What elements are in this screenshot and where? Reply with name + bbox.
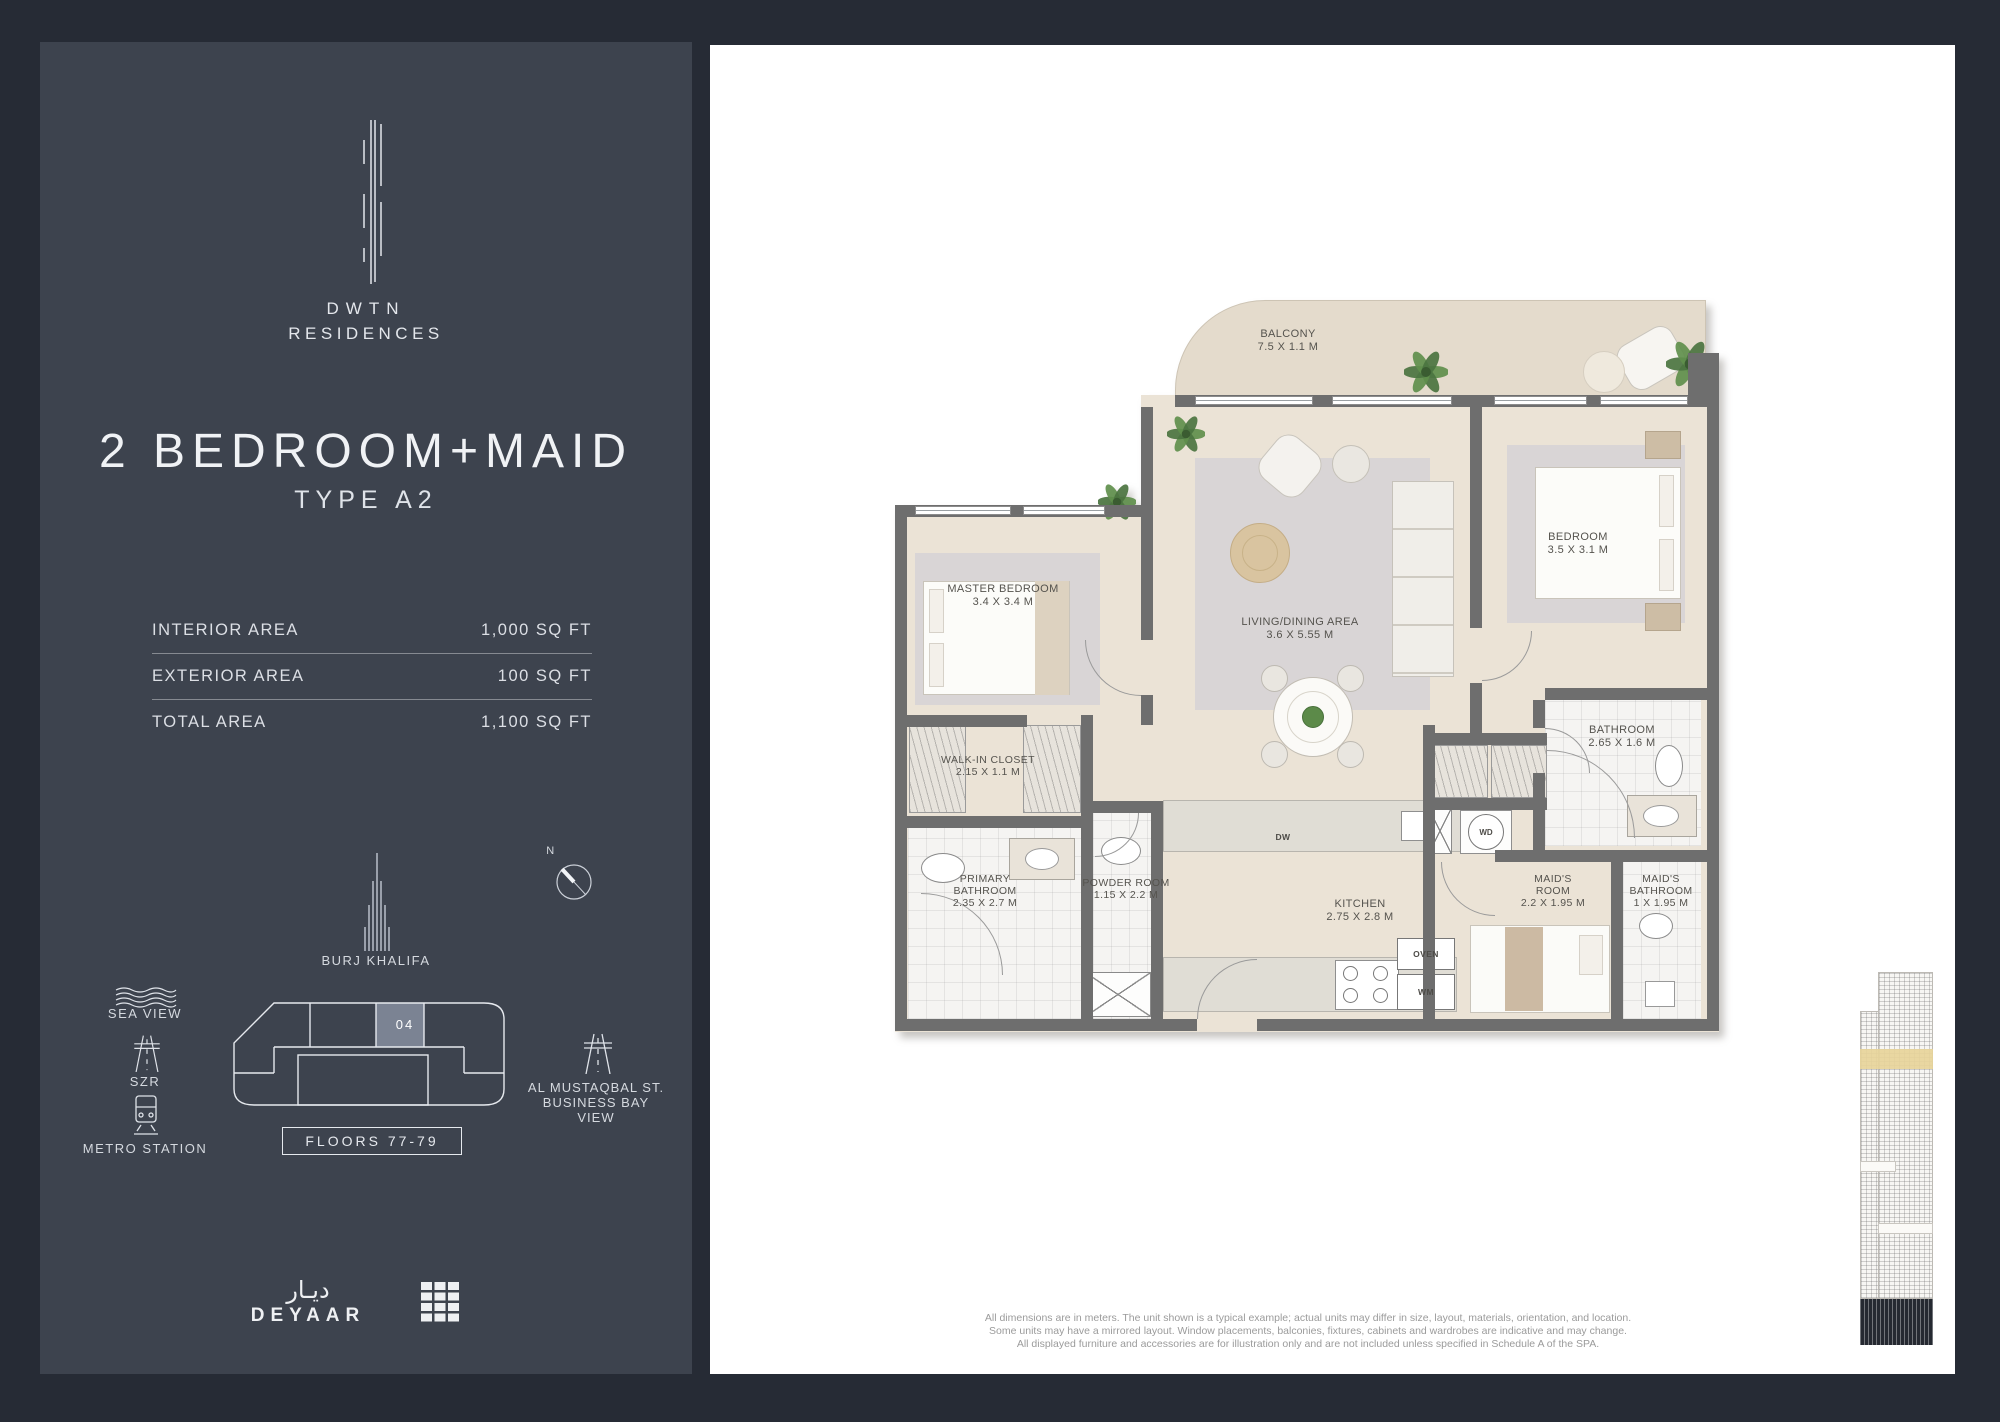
wall-wic-pbath: [907, 816, 1081, 828]
room-label-master-bedroom: MASTER BEDROOM 3.4 X 3.4 M: [905, 583, 1101, 609]
room-dims: 2.2 X 1.95 M: [1520, 897, 1586, 909]
room-dims: 3.6 X 5.55 M: [1200, 629, 1400, 642]
metro-station-icon: [129, 1094, 163, 1136]
wall-wic-top: [907, 715, 1027, 727]
plant-icon: [1404, 350, 1448, 394]
deyaar-latin-wordmark: DEYAAR: [208, 1305, 408, 1327]
brochure-page: DWTN RESIDENCES 2 BEDROOM+MAID TYPE A2 I…: [0, 0, 2000, 1422]
room-label-living-dining: LIVING/DINING AREA 3.6 X 5.55 M: [1200, 616, 1400, 642]
street-view-label: AL MUSTAQBAL ST. BUSINESS BAY VIEW: [520, 1080, 672, 1125]
plant-2: [1167, 415, 1205, 453]
street-line: AL MUSTAQBAL ST.: [520, 1080, 672, 1095]
szr-road-icon: [127, 1032, 167, 1072]
wall-bath-top: [1545, 688, 1707, 700]
metro-station-label: METRO STATION: [63, 1141, 227, 1156]
disclaimer-line: All displayed furniture and accessories …: [958, 1338, 1658, 1352]
washing-machine-label: WM: [1397, 974, 1455, 1010]
wall-living-bed2-1: [1470, 407, 1482, 628]
room-dims: 1.15 X 2.2 M: [1066, 889, 1186, 901]
room-label-walk-in-closet: WALK-IN CLOSET 2.15 X 1.1 M: [890, 754, 1086, 778]
window-3: [1600, 396, 1688, 405]
elevation-tower-right: [1878, 972, 1933, 1299]
room-name: WALK-IN CLOSET: [890, 754, 1086, 766]
floor-highlight-band: [1860, 1049, 1933, 1069]
area-value: 1,000 SQ FT: [481, 621, 592, 640]
sofa: [1392, 481, 1454, 677]
elevation-mech-band: [1860, 1161, 1896, 1172]
elevation-podium: [1860, 1299, 1933, 1345]
brand-name-line2: RESIDENCES: [40, 324, 692, 344]
szr-label: SZR: [85, 1074, 205, 1089]
bedroom-nightstand: [1645, 603, 1681, 631]
room-name: LIVING/DINING AREA: [1200, 616, 1400, 629]
wall-powder-left: [1081, 813, 1093, 1031]
dining-plant: [1302, 706, 1324, 728]
room-name: MAID'S ROOM: [1520, 873, 1586, 897]
oven-label: OVEN: [1397, 938, 1455, 970]
window-2: [1494, 396, 1587, 405]
floor-plan: [895, 295, 1720, 1040]
coffee-table-ring: [1242, 535, 1278, 571]
balcony-pouf: [1583, 351, 1625, 393]
room-dims: 2.65 X 1.6 M: [1524, 737, 1720, 750]
room-dims: 2.35 X 2.7 M: [937, 897, 1033, 909]
room-name: BATHROOM: [1524, 724, 1720, 737]
room-label-maids-room: MAID'S ROOM 2.2 X 1.95 M: [1520, 873, 1586, 909]
room-label-kitchen: KITCHEN 2.75 X 2.8 M: [1262, 898, 1458, 924]
room-dims: 3.5 X 3.1 M: [1480, 544, 1676, 557]
wall-master-living-1: [1141, 407, 1153, 640]
wall-bath-left-2: [1533, 773, 1545, 850]
stove-burner: [1343, 988, 1358, 1003]
disclaimer-line: Some units may have a mirrored layout. W…: [958, 1325, 1658, 1339]
bedroom-pillow: [1659, 475, 1674, 527]
plant-icon: [1167, 415, 1205, 453]
table-row: TOTAL AREA 1,100 SQ FT: [152, 700, 592, 745]
room-label-primary-bathroom: PRIMARY BATHROOM 2.35 X 2.7 M: [937, 873, 1033, 909]
primary-bath-basin: [1025, 848, 1059, 870]
burj-khalifa-icon: [354, 853, 400, 951]
window-4: [915, 506, 1011, 515]
room-label-balcony: BALCONY 7.5 X 1.1 M: [1188, 328, 1388, 354]
elevation-mech-band: [1878, 1223, 1933, 1234]
maids-bath-sink: [1645, 981, 1675, 1007]
room-label-powder-room: POWDER ROOM 1.15 X 2.2 M: [1066, 877, 1186, 901]
room-dims: 2.15 X 1.1 M: [890, 766, 1086, 778]
window-0: [1195, 396, 1313, 405]
deyaar-logo-mark-icon: [421, 1282, 459, 1322]
area-value: 100 SQ FT: [498, 667, 592, 686]
building-elevation: [1860, 965, 1935, 1347]
sea-view-icon: [114, 986, 178, 1008]
floorplate-diagram: [228, 995, 510, 1113]
room-name: KITCHEN: [1262, 898, 1458, 911]
brand-building-icon: [350, 116, 394, 288]
window-1: [1332, 396, 1452, 405]
room-name: POWDER ROOM: [1066, 877, 1186, 889]
toilet: [1639, 913, 1673, 939]
plant-0: [1404, 350, 1448, 394]
sea-view-label: SEA VIEW: [85, 1006, 205, 1021]
page-title: 2 BEDROOM+MAID: [40, 424, 692, 479]
wall-master-living-2: [1141, 695, 1153, 725]
floors-badge: FLOORS 77-79: [282, 1127, 462, 1155]
wall-maid-top: [1495, 850, 1707, 862]
brand-name-line1: DWTN: [40, 299, 692, 319]
shaft-box: [1085, 972, 1151, 1017]
room-dims: 1 X 1.95 M: [1617, 897, 1705, 909]
page-subtitle: TYPE A2: [40, 486, 692, 515]
unit-number: 04: [381, 1017, 429, 1032]
room-name: BEDROOM: [1480, 531, 1676, 544]
side-table: [1332, 445, 1370, 483]
hall-wardrobe: [1431, 745, 1488, 798]
stove-burner: [1373, 966, 1388, 981]
wall-wardrobe-bottom: [1431, 798, 1547, 810]
street-road-icon: [577, 1030, 619, 1074]
toilet: [1655, 745, 1683, 787]
room-label-bedroom: BEDROOM 3.5 X 3.1 M: [1480, 531, 1676, 557]
room-name: MAID'S BATHROOM: [1617, 873, 1705, 897]
washer-dryer-label: WD: [1468, 814, 1504, 850]
room-name: MASTER BEDROOM: [905, 583, 1101, 596]
wall-powder-right: [1151, 801, 1163, 1031]
disclaimer-line: All dimensions are in meters. The unit s…: [958, 1312, 1658, 1326]
master-pillow: [929, 643, 944, 687]
wall-right: [1707, 395, 1719, 1031]
bath-basin: [1643, 805, 1679, 827]
maids-pillow: [1579, 935, 1603, 975]
room-label-maids-bathroom: MAID'S BATHROOM 1 X 1.95 M: [1617, 873, 1705, 909]
compass-icon: [546, 854, 600, 908]
area-label: EXTERIOR AREA: [152, 667, 304, 686]
room-label-bathroom: BATHROOM 2.65 X 1.6 M: [1524, 724, 1720, 750]
window-5: [1023, 506, 1105, 515]
area-label: INTERIOR AREA: [152, 621, 299, 640]
table-row: EXTERIOR AREA 100 SQ FT: [152, 654, 592, 699]
street-line: BUSINESS BAY: [520, 1095, 672, 1110]
table-row: INTERIOR AREA 1,000 SQ FT: [152, 608, 592, 653]
area-table: INTERIOR AREA 1,000 SQ FT EXTERIOR AREA …: [152, 608, 592, 745]
burj-khalifa-label: BURJ KHALIFA: [276, 953, 476, 968]
room-name: PRIMARY BATHROOM: [937, 873, 1033, 897]
area-value: 1,100 SQ FT: [481, 713, 592, 732]
stove-burner: [1343, 966, 1358, 981]
room-dims: 7.5 X 1.1 M: [1188, 341, 1388, 354]
area-label: TOTAL AREA: [152, 713, 267, 732]
maids-bed-blanket: [1505, 927, 1543, 1011]
wall-bottom-right: [1257, 1019, 1719, 1031]
dishwasher-label: DW: [1266, 828, 1300, 846]
room-dims: 3.4 X 3.4 M: [905, 596, 1101, 609]
bedroom-nightstand: [1645, 431, 1681, 459]
room-dims: 2.75 X 2.8 M: [1262, 911, 1458, 924]
room-name: BALCONY: [1188, 328, 1388, 341]
street-line: VIEW: [520, 1110, 672, 1125]
stove-burner: [1373, 988, 1388, 1003]
deyaar-arabic-wordmark: ديـار: [208, 1276, 408, 1304]
